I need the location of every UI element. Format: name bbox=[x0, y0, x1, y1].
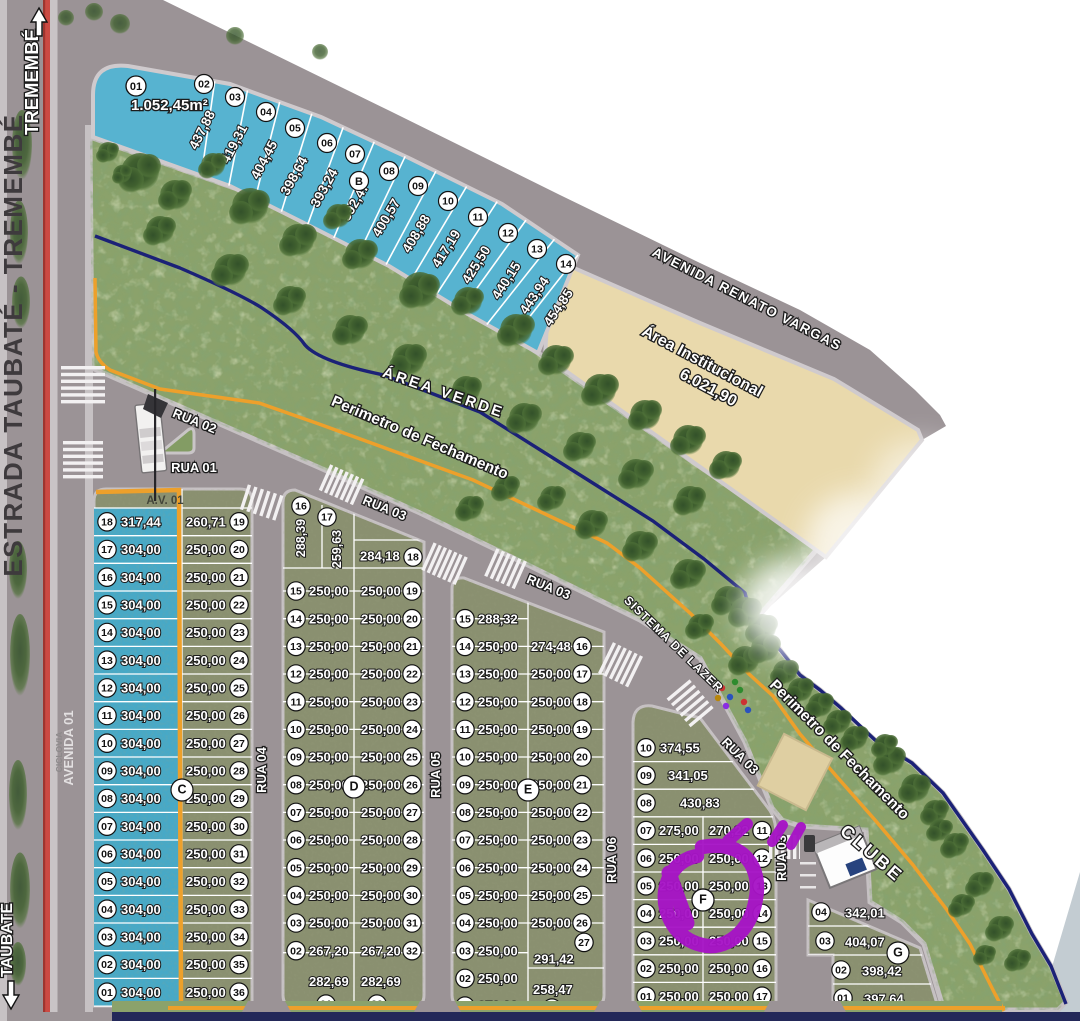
svg-text:22: 22 bbox=[576, 807, 588, 819]
svg-text:09: 09 bbox=[290, 752, 302, 764]
svg-text:1.052,45m²: 1.052,45m² bbox=[131, 97, 208, 114]
svg-text:250,00: 250,00 bbox=[709, 878, 749, 893]
svg-text:250,00: 250,00 bbox=[309, 750, 349, 765]
svg-text:250,00: 250,00 bbox=[309, 888, 349, 903]
svg-text:D: D bbox=[349, 780, 358, 794]
svg-text:E: E bbox=[524, 783, 532, 797]
svg-text:03: 03 bbox=[229, 92, 241, 104]
svg-text:250,00: 250,00 bbox=[478, 694, 518, 709]
svg-text:03: 03 bbox=[459, 945, 471, 957]
svg-text:A.V. 01: A.V. 01 bbox=[146, 495, 184, 507]
svg-text:06: 06 bbox=[640, 853, 652, 865]
svg-text:10: 10 bbox=[640, 742, 652, 754]
svg-text:304,00: 304,00 bbox=[121, 542, 161, 557]
svg-text:25: 25 bbox=[406, 752, 418, 764]
svg-text:10: 10 bbox=[442, 196, 454, 208]
svg-text:20: 20 bbox=[233, 544, 245, 556]
svg-text:250,00: 250,00 bbox=[478, 971, 518, 986]
svg-text:06: 06 bbox=[290, 835, 302, 847]
svg-text:14: 14 bbox=[290, 613, 302, 625]
svg-text:21: 21 bbox=[406, 641, 418, 653]
svg-text:250,00: 250,00 bbox=[659, 961, 699, 976]
svg-text:11: 11 bbox=[756, 825, 767, 837]
svg-text:04: 04 bbox=[459, 918, 471, 930]
svg-text:275,00: 275,00 bbox=[659, 823, 699, 838]
svg-text:26: 26 bbox=[406, 779, 418, 791]
svg-text:250,00: 250,00 bbox=[361, 777, 401, 792]
svg-text:398,42: 398,42 bbox=[862, 964, 902, 979]
svg-text:304,00: 304,00 bbox=[121, 930, 161, 945]
svg-text:250,00: 250,00 bbox=[309, 611, 349, 626]
svg-text:04: 04 bbox=[101, 904, 113, 916]
svg-text:02: 02 bbox=[198, 79, 210, 91]
svg-text:250,00: 250,00 bbox=[531, 833, 571, 848]
svg-text:250,00: 250,00 bbox=[186, 819, 226, 834]
svg-text:31: 31 bbox=[233, 849, 245, 861]
svg-text:250,00: 250,00 bbox=[309, 805, 349, 820]
svg-text:17: 17 bbox=[101, 544, 113, 556]
svg-text:RUA 05: RUA 05 bbox=[428, 752, 443, 798]
svg-text:02: 02 bbox=[640, 963, 652, 975]
svg-text:24: 24 bbox=[233, 655, 245, 667]
svg-text:05: 05 bbox=[640, 880, 652, 892]
svg-text:13: 13 bbox=[101, 655, 113, 667]
svg-text:250,00: 250,00 bbox=[531, 805, 571, 820]
svg-text:16: 16 bbox=[295, 501, 307, 513]
svg-text:ESTRADA TAUBATÉ - TREMEMBÉ: ESTRADA TAUBATÉ - TREMEMBÉ bbox=[0, 113, 28, 576]
svg-text:291,42: 291,42 bbox=[534, 952, 574, 967]
svg-text:18: 18 bbox=[407, 552, 419, 564]
svg-text:30: 30 bbox=[406, 890, 418, 902]
svg-text:250,00: 250,00 bbox=[186, 930, 226, 945]
svg-text:08: 08 bbox=[101, 793, 113, 805]
svg-text:09: 09 bbox=[640, 770, 652, 782]
svg-text:250,00: 250,00 bbox=[309, 833, 349, 848]
svg-text:04: 04 bbox=[640, 908, 652, 920]
svg-text:304,00: 304,00 bbox=[121, 791, 161, 806]
svg-text:317,44: 317,44 bbox=[121, 514, 162, 529]
svg-text:24: 24 bbox=[406, 724, 418, 736]
svg-text:304,00: 304,00 bbox=[121, 957, 161, 972]
svg-text:12: 12 bbox=[459, 696, 471, 708]
svg-text:250,00: 250,00 bbox=[531, 667, 571, 682]
svg-text:250,00: 250,00 bbox=[361, 860, 401, 875]
svg-text:06: 06 bbox=[101, 849, 113, 861]
svg-text:09: 09 bbox=[101, 766, 113, 778]
svg-text:304,00: 304,00 bbox=[121, 653, 161, 668]
svg-text:23: 23 bbox=[406, 696, 418, 708]
svg-text:304,00: 304,00 bbox=[121, 681, 161, 696]
svg-text:250,00: 250,00 bbox=[186, 653, 226, 668]
svg-text:250,00: 250,00 bbox=[361, 639, 401, 654]
svg-text:250,00: 250,00 bbox=[361, 611, 401, 626]
svg-text:25: 25 bbox=[576, 890, 588, 902]
svg-text:RUA 06: RUA 06 bbox=[604, 837, 619, 883]
svg-text:04: 04 bbox=[815, 907, 827, 919]
svg-text:14: 14 bbox=[101, 627, 113, 639]
svg-text:250,00: 250,00 bbox=[478, 943, 518, 958]
svg-text:260,71: 260,71 bbox=[186, 514, 226, 529]
svg-text:250,00: 250,00 bbox=[361, 694, 401, 709]
svg-text:RUA 04: RUA 04 bbox=[254, 746, 269, 793]
svg-text:08: 08 bbox=[290, 779, 302, 791]
svg-text:07: 07 bbox=[349, 149, 361, 161]
svg-text:02: 02 bbox=[101, 959, 113, 971]
svg-text:18: 18 bbox=[101, 516, 113, 528]
svg-text:27: 27 bbox=[578, 937, 590, 949]
svg-text:G: G bbox=[893, 946, 903, 960]
svg-text:24: 24 bbox=[576, 862, 588, 874]
svg-text:267,20: 267,20 bbox=[309, 943, 349, 958]
svg-text:CICLOVIA: CICLOVIA bbox=[54, 732, 64, 773]
svg-text:250,00: 250,00 bbox=[531, 888, 571, 903]
svg-text:23: 23 bbox=[233, 627, 245, 639]
svg-text:250,00: 250,00 bbox=[186, 874, 226, 889]
svg-text:32: 32 bbox=[406, 945, 418, 957]
svg-text:01: 01 bbox=[130, 81, 142, 93]
svg-text:304,00: 304,00 bbox=[121, 985, 161, 1000]
svg-text:304,00: 304,00 bbox=[121, 597, 161, 612]
svg-text:25: 25 bbox=[233, 683, 245, 695]
svg-text:05: 05 bbox=[289, 123, 301, 135]
svg-text:374,55: 374,55 bbox=[660, 740, 700, 755]
svg-text:22: 22 bbox=[406, 669, 418, 681]
svg-text:258,47: 258,47 bbox=[533, 982, 573, 997]
svg-text:13: 13 bbox=[290, 641, 302, 653]
svg-text:36: 36 bbox=[233, 987, 245, 999]
svg-text:288,32: 288,32 bbox=[478, 611, 518, 626]
svg-text:259,63: 259,63 bbox=[330, 530, 344, 568]
svg-text:304,00: 304,00 bbox=[121, 708, 161, 723]
svg-text:304,00: 304,00 bbox=[121, 847, 161, 862]
svg-text:250,00: 250,00 bbox=[361, 667, 401, 682]
svg-text:250,00: 250,00 bbox=[186, 542, 226, 557]
svg-text:21: 21 bbox=[576, 779, 588, 791]
svg-text:06: 06 bbox=[321, 138, 333, 150]
svg-text:03: 03 bbox=[290, 918, 302, 930]
svg-text:250,00: 250,00 bbox=[309, 584, 349, 599]
svg-text:342,01: 342,01 bbox=[845, 906, 885, 921]
svg-text:29: 29 bbox=[233, 793, 245, 805]
svg-text:250,00: 250,00 bbox=[478, 667, 518, 682]
svg-text:250,00: 250,00 bbox=[186, 681, 226, 696]
svg-text:19: 19 bbox=[406, 586, 418, 598]
svg-text:26: 26 bbox=[233, 710, 245, 722]
svg-text:08: 08 bbox=[459, 807, 471, 819]
svg-text:250,00: 250,00 bbox=[478, 750, 518, 765]
svg-text:04: 04 bbox=[260, 107, 272, 119]
svg-text:16: 16 bbox=[576, 641, 588, 653]
svg-text:28: 28 bbox=[233, 766, 245, 778]
svg-text:250,00: 250,00 bbox=[309, 860, 349, 875]
svg-text:10: 10 bbox=[101, 738, 113, 750]
svg-text:304,00: 304,00 bbox=[121, 764, 161, 779]
svg-text:14: 14 bbox=[560, 259, 572, 271]
svg-text:03: 03 bbox=[819, 936, 831, 948]
svg-text:15: 15 bbox=[756, 936, 768, 948]
svg-text:250,00: 250,00 bbox=[309, 694, 349, 709]
svg-text:250,00: 250,00 bbox=[531, 860, 571, 875]
svg-text:341,05: 341,05 bbox=[668, 768, 708, 783]
svg-text:14: 14 bbox=[459, 641, 471, 653]
svg-text:12: 12 bbox=[101, 683, 113, 695]
svg-text:11: 11 bbox=[101, 710, 112, 722]
svg-text:250,00: 250,00 bbox=[186, 570, 226, 585]
svg-text:250,00: 250,00 bbox=[478, 860, 518, 875]
svg-text:250,00: 250,00 bbox=[361, 805, 401, 820]
svg-text:250,00: 250,00 bbox=[478, 777, 518, 792]
svg-text:15: 15 bbox=[290, 586, 302, 598]
svg-text:07: 07 bbox=[290, 807, 302, 819]
svg-text:05: 05 bbox=[101, 876, 113, 888]
svg-text:RUA 01: RUA 01 bbox=[171, 460, 217, 475]
svg-text:250,00: 250,00 bbox=[186, 597, 226, 612]
svg-text:26: 26 bbox=[576, 918, 588, 930]
svg-text:27: 27 bbox=[233, 738, 245, 750]
svg-text:27: 27 bbox=[406, 807, 418, 819]
svg-text:250,00: 250,00 bbox=[361, 750, 401, 765]
svg-text:250,00: 250,00 bbox=[361, 833, 401, 848]
svg-text:284,18: 284,18 bbox=[360, 549, 400, 564]
svg-text:20: 20 bbox=[576, 752, 588, 764]
svg-text:17: 17 bbox=[576, 669, 588, 681]
svg-text:07: 07 bbox=[459, 835, 471, 847]
svg-text:F: F bbox=[699, 893, 707, 907]
svg-text:250,00: 250,00 bbox=[478, 639, 518, 654]
svg-text:10: 10 bbox=[290, 724, 302, 736]
svg-text:11: 11 bbox=[290, 696, 301, 708]
svg-text:304,00: 304,00 bbox=[121, 874, 161, 889]
svg-text:250,00: 250,00 bbox=[309, 667, 349, 682]
svg-text:250,00: 250,00 bbox=[186, 764, 226, 779]
svg-text:34: 34 bbox=[233, 932, 245, 944]
svg-text:33: 33 bbox=[233, 904, 245, 916]
svg-text:250,00: 250,00 bbox=[361, 584, 401, 599]
svg-text:250,00: 250,00 bbox=[478, 722, 518, 737]
svg-text:11: 11 bbox=[472, 212, 483, 224]
svg-text:02: 02 bbox=[459, 973, 471, 985]
svg-text:304,00: 304,00 bbox=[121, 819, 161, 834]
svg-text:23: 23 bbox=[576, 835, 588, 847]
svg-text:250,00: 250,00 bbox=[186, 847, 226, 862]
svg-text:11: 11 bbox=[459, 724, 470, 736]
svg-text:19: 19 bbox=[576, 724, 588, 736]
svg-text:05: 05 bbox=[459, 890, 471, 902]
svg-text:250,00: 250,00 bbox=[309, 639, 349, 654]
svg-text:28: 28 bbox=[406, 835, 418, 847]
svg-text:250,00: 250,00 bbox=[478, 805, 518, 820]
svg-text:16: 16 bbox=[756, 963, 768, 975]
svg-text:267,20: 267,20 bbox=[361, 943, 401, 958]
svg-text:16: 16 bbox=[101, 572, 113, 584]
svg-text:250,00: 250,00 bbox=[186, 985, 226, 1000]
svg-text:250,00: 250,00 bbox=[186, 957, 226, 972]
svg-text:288,39: 288,39 bbox=[294, 519, 308, 557]
svg-text:274,48: 274,48 bbox=[531, 639, 571, 654]
svg-text:304,00: 304,00 bbox=[121, 736, 161, 751]
svg-text:250,00: 250,00 bbox=[186, 625, 226, 640]
svg-text:250,00: 250,00 bbox=[531, 916, 571, 931]
svg-text:06: 06 bbox=[459, 862, 471, 874]
svg-text:250,00: 250,00 bbox=[361, 916, 401, 931]
svg-text:430,83: 430,83 bbox=[680, 796, 720, 811]
svg-text:12: 12 bbox=[502, 228, 514, 240]
svg-text:31: 31 bbox=[406, 918, 418, 930]
svg-text:15: 15 bbox=[459, 613, 471, 625]
svg-text:13: 13 bbox=[459, 669, 471, 681]
svg-text:C: C bbox=[177, 783, 186, 797]
svg-text:404,07: 404,07 bbox=[845, 935, 885, 950]
svg-text:250,00: 250,00 bbox=[361, 888, 401, 903]
svg-text:13: 13 bbox=[531, 244, 543, 256]
svg-text:01: 01 bbox=[101, 987, 113, 999]
svg-text:10: 10 bbox=[459, 752, 471, 764]
svg-text:250,00: 250,00 bbox=[531, 722, 571, 737]
svg-text:304,00: 304,00 bbox=[121, 902, 161, 917]
svg-text:304,00: 304,00 bbox=[121, 570, 161, 585]
svg-text:250,00: 250,00 bbox=[478, 833, 518, 848]
svg-text:19: 19 bbox=[233, 516, 245, 528]
svg-text:08: 08 bbox=[383, 166, 395, 178]
svg-text:22: 22 bbox=[233, 599, 245, 611]
svg-text:32: 32 bbox=[233, 876, 245, 888]
svg-text:02: 02 bbox=[835, 965, 847, 977]
svg-text:282,69: 282,69 bbox=[361, 974, 401, 989]
svg-text:30: 30 bbox=[233, 821, 245, 833]
svg-text:250,00: 250,00 bbox=[531, 694, 571, 709]
svg-text:250,00: 250,00 bbox=[709, 961, 749, 976]
svg-text:18: 18 bbox=[576, 696, 588, 708]
svg-text:250,00: 250,00 bbox=[186, 902, 226, 917]
svg-text:TAUBATÉ: TAUBATÉ bbox=[0, 903, 16, 977]
svg-text:03: 03 bbox=[640, 936, 652, 948]
svg-text:07: 07 bbox=[101, 821, 113, 833]
svg-text:250,00: 250,00 bbox=[478, 916, 518, 931]
svg-text:04: 04 bbox=[290, 890, 302, 902]
svg-text:20: 20 bbox=[406, 613, 418, 625]
svg-text:29: 29 bbox=[406, 862, 418, 874]
svg-text:250,00: 250,00 bbox=[309, 722, 349, 737]
svg-text:250,00: 250,00 bbox=[531, 750, 571, 765]
svg-text:17: 17 bbox=[321, 512, 333, 524]
svg-text:12: 12 bbox=[290, 669, 302, 681]
svg-text:03: 03 bbox=[101, 932, 113, 944]
svg-text:B: B bbox=[355, 176, 363, 188]
svg-text:09: 09 bbox=[412, 181, 424, 193]
svg-text:304,00: 304,00 bbox=[121, 625, 161, 640]
svg-text:21: 21 bbox=[233, 572, 245, 584]
svg-text:09: 09 bbox=[459, 779, 471, 791]
svg-text:08: 08 bbox=[640, 798, 652, 810]
svg-text:250,00: 250,00 bbox=[186, 736, 226, 751]
svg-text:02: 02 bbox=[290, 945, 302, 957]
svg-text:250,00: 250,00 bbox=[478, 888, 518, 903]
svg-text:07: 07 bbox=[640, 825, 652, 837]
svg-text:250,00: 250,00 bbox=[309, 916, 349, 931]
svg-text:250,00: 250,00 bbox=[186, 708, 226, 723]
svg-text:05: 05 bbox=[290, 862, 302, 874]
svg-text:TREMEMBÉ: TREMEMBÉ bbox=[21, 29, 42, 135]
svg-text:250,00: 250,00 bbox=[361, 722, 401, 737]
svg-text:15: 15 bbox=[101, 599, 113, 611]
svg-text:35: 35 bbox=[233, 959, 245, 971]
svg-text:282,69: 282,69 bbox=[309, 974, 349, 989]
